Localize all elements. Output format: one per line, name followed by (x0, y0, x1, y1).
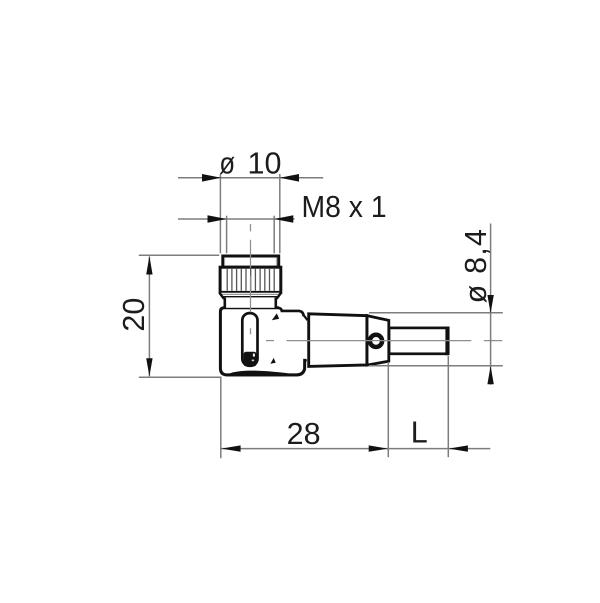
svg-text:ø 8,4: ø 8,4 (459, 228, 493, 303)
svg-text:L: L (411, 416, 428, 450)
svg-text:28: 28 (287, 417, 321, 451)
svg-text:10: 10 (248, 146, 282, 180)
svg-text:20: 20 (117, 298, 151, 332)
svg-text:ø: ø (219, 145, 235, 179)
svg-text:M8 x 1: M8 x 1 (302, 190, 387, 224)
